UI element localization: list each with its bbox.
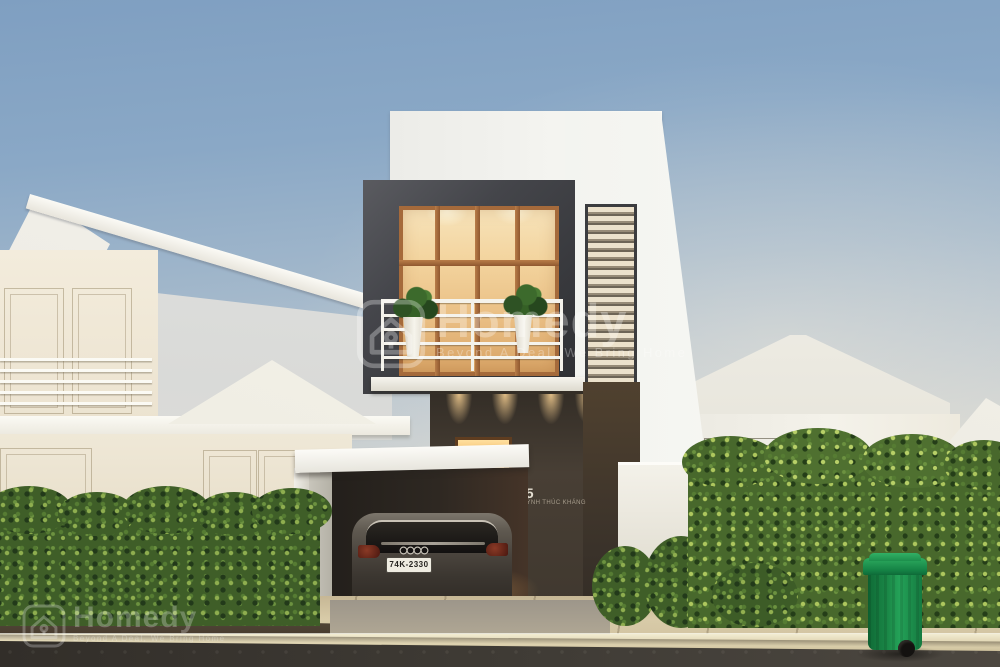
license-plate: 74K-2330 [386,557,432,573]
left-house-wall-panel [4,288,64,414]
balcony-plant [499,284,549,320]
round-shrub [712,563,798,627]
car-rear-window [366,520,498,553]
house-number: 05 [517,487,593,500]
downlight-glow [538,394,564,424]
balcony-slab [371,377,585,391]
car-tail-light [486,543,508,556]
street-name: HUỲNH THÚC KHÁNG [517,500,593,506]
downlight-glow [446,394,472,424]
green-trash-bin [868,572,922,650]
trash-bin-wheel [898,640,915,657]
driveway-apron [330,600,610,636]
downlight-glow [492,394,518,424]
car-chrome-trim [381,542,485,545]
house-number-sign: 05 HUỲNH THÚC KHÁNG [517,487,593,517]
architectural-rendering-scene: 05 HUỲNH THÚC KHÁNG 74K-2330 [0,0,1000,667]
trash-bin-lid [863,558,927,575]
car-tail-light [358,545,380,558]
audi-rings-icon [399,546,429,555]
left-house-wall-panel [72,288,132,414]
left-house-upper-wall [0,250,158,422]
louver-screen-panel [585,204,637,385]
